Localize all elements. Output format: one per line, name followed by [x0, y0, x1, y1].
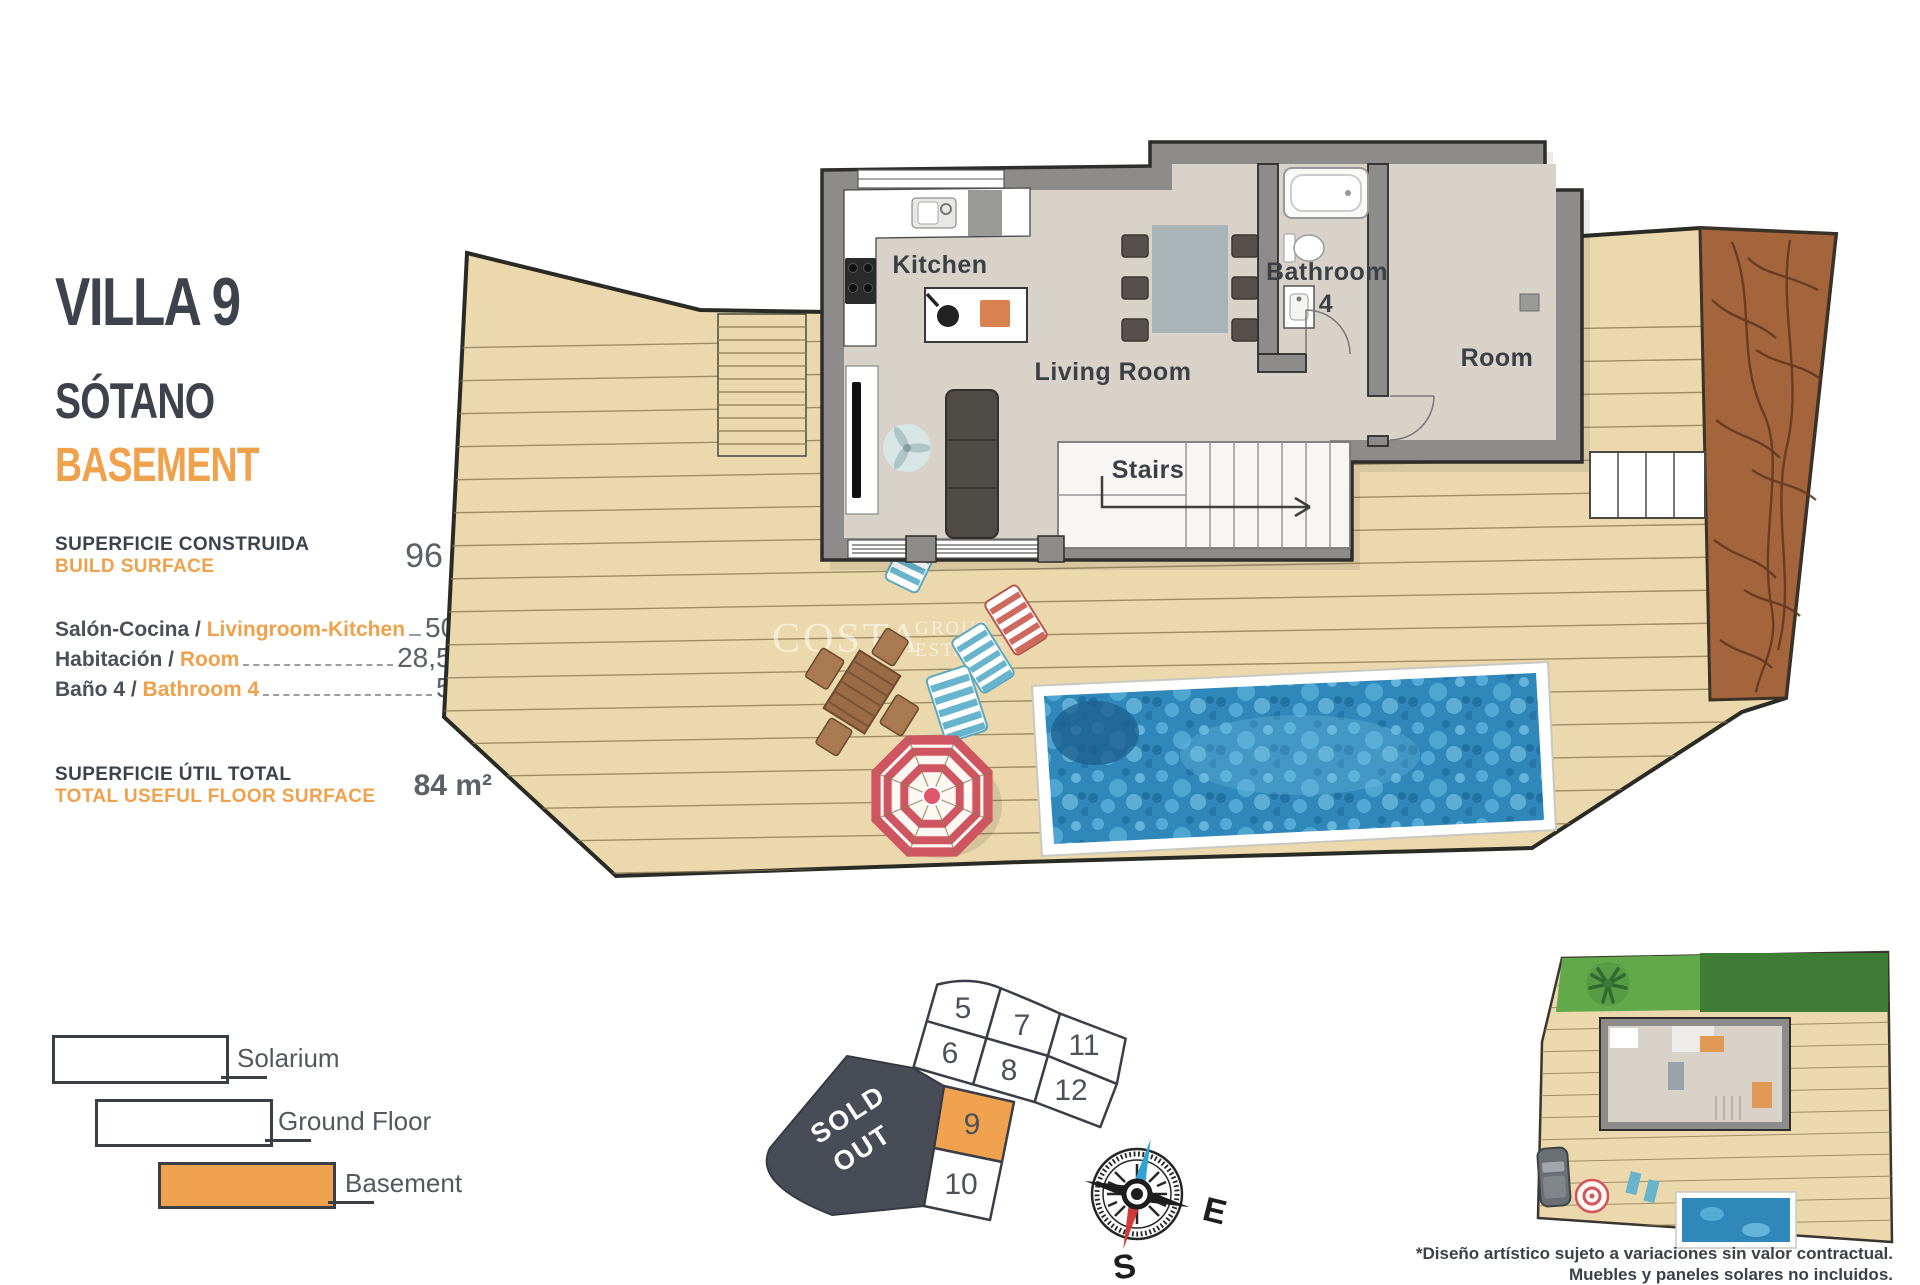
legend-leader — [265, 1139, 311, 1142]
mini-house — [1600, 1018, 1790, 1130]
dirt-terrain — [1700, 228, 1836, 700]
stairs — [1058, 442, 1350, 548]
ceiling-fan-icon — [883, 424, 931, 472]
mini-car — [1537, 1147, 1571, 1207]
legend-label-ground-floor: Ground Floor — [278, 1106, 431, 1137]
label-kitchen: Kitchen — [892, 251, 987, 279]
cutting-board — [980, 300, 1010, 327]
label-stairs: Stairs — [1112, 456, 1184, 484]
label-room: Room — [1461, 344, 1534, 372]
parcel-number-11: 11 — [1068, 1029, 1099, 1062]
exterior-steps — [1590, 452, 1705, 518]
mini-parasol — [1576, 1180, 1608, 1212]
room-column — [1520, 294, 1539, 311]
parcel-number-9: 9 — [964, 1108, 981, 1141]
tv-screen — [852, 382, 861, 498]
frying-pan — [937, 305, 959, 327]
deck-step-strip — [718, 314, 806, 456]
mini-lawn-dark — [1700, 953, 1888, 1012]
swimming-pool — [1032, 662, 1556, 856]
parcel-number-10: 10 — [944, 1168, 977, 1201]
label-living-room: Living Room — [1035, 358, 1192, 386]
mini-pool — [1676, 1192, 1796, 1248]
bathroom-sink — [1284, 286, 1314, 328]
compass-east-label: E — [1199, 1190, 1230, 1232]
disclaimer-text: *Diseño artístico sujeto a variaciones s… — [1133, 1243, 1893, 1285]
disclaimer-line2: Muebles y paneles solares no incluidos. — [1133, 1264, 1893, 1285]
legend-box-ground-floor — [95, 1099, 273, 1147]
legend-label-solarium: Solarium — [237, 1043, 340, 1074]
legend-box-solarium — [52, 1035, 229, 1084]
parcel-map: SOLD OUT 5 7 11 6 8 12 9 10 — [767, 970, 1134, 1220]
legend-label-basement: Basement — [345, 1168, 462, 1199]
parcel-number-7: 7 — [1014, 1009, 1031, 1042]
kitchen-island — [925, 288, 1027, 342]
kitchen-cabinet — [968, 190, 1002, 236]
parcel-number-6: 6 — [942, 1037, 959, 1070]
label-bathroom: Bathroom — [1266, 258, 1388, 286]
parcel-number-12: 12 — [1054, 1074, 1087, 1107]
mini-palm-tree — [1586, 962, 1630, 1006]
parcel-number-5: 5 — [955, 992, 972, 1025]
legend-box-basement — [158, 1162, 336, 1209]
kitchen-window — [858, 170, 1004, 188]
legend-leader — [221, 1076, 267, 1079]
parcel-number-8: 8 — [1001, 1054, 1018, 1087]
tv-unit — [846, 366, 878, 514]
stove — [845, 258, 876, 304]
legend-leader — [328, 1201, 374, 1204]
disclaimer-line1: *Diseño artístico sujeto a variaciones s… — [1133, 1243, 1893, 1264]
sliding-door — [848, 536, 1064, 562]
sofa — [946, 390, 998, 538]
dining-table — [1122, 225, 1258, 341]
bathtub — [1284, 168, 1368, 218]
mini-site-plan — [1530, 952, 1900, 1248]
label-bathroom-number: 4 — [1319, 290, 1333, 318]
floor-plan-canvas: COSTA GROUP ESTATES — [0, 0, 1920, 1280]
